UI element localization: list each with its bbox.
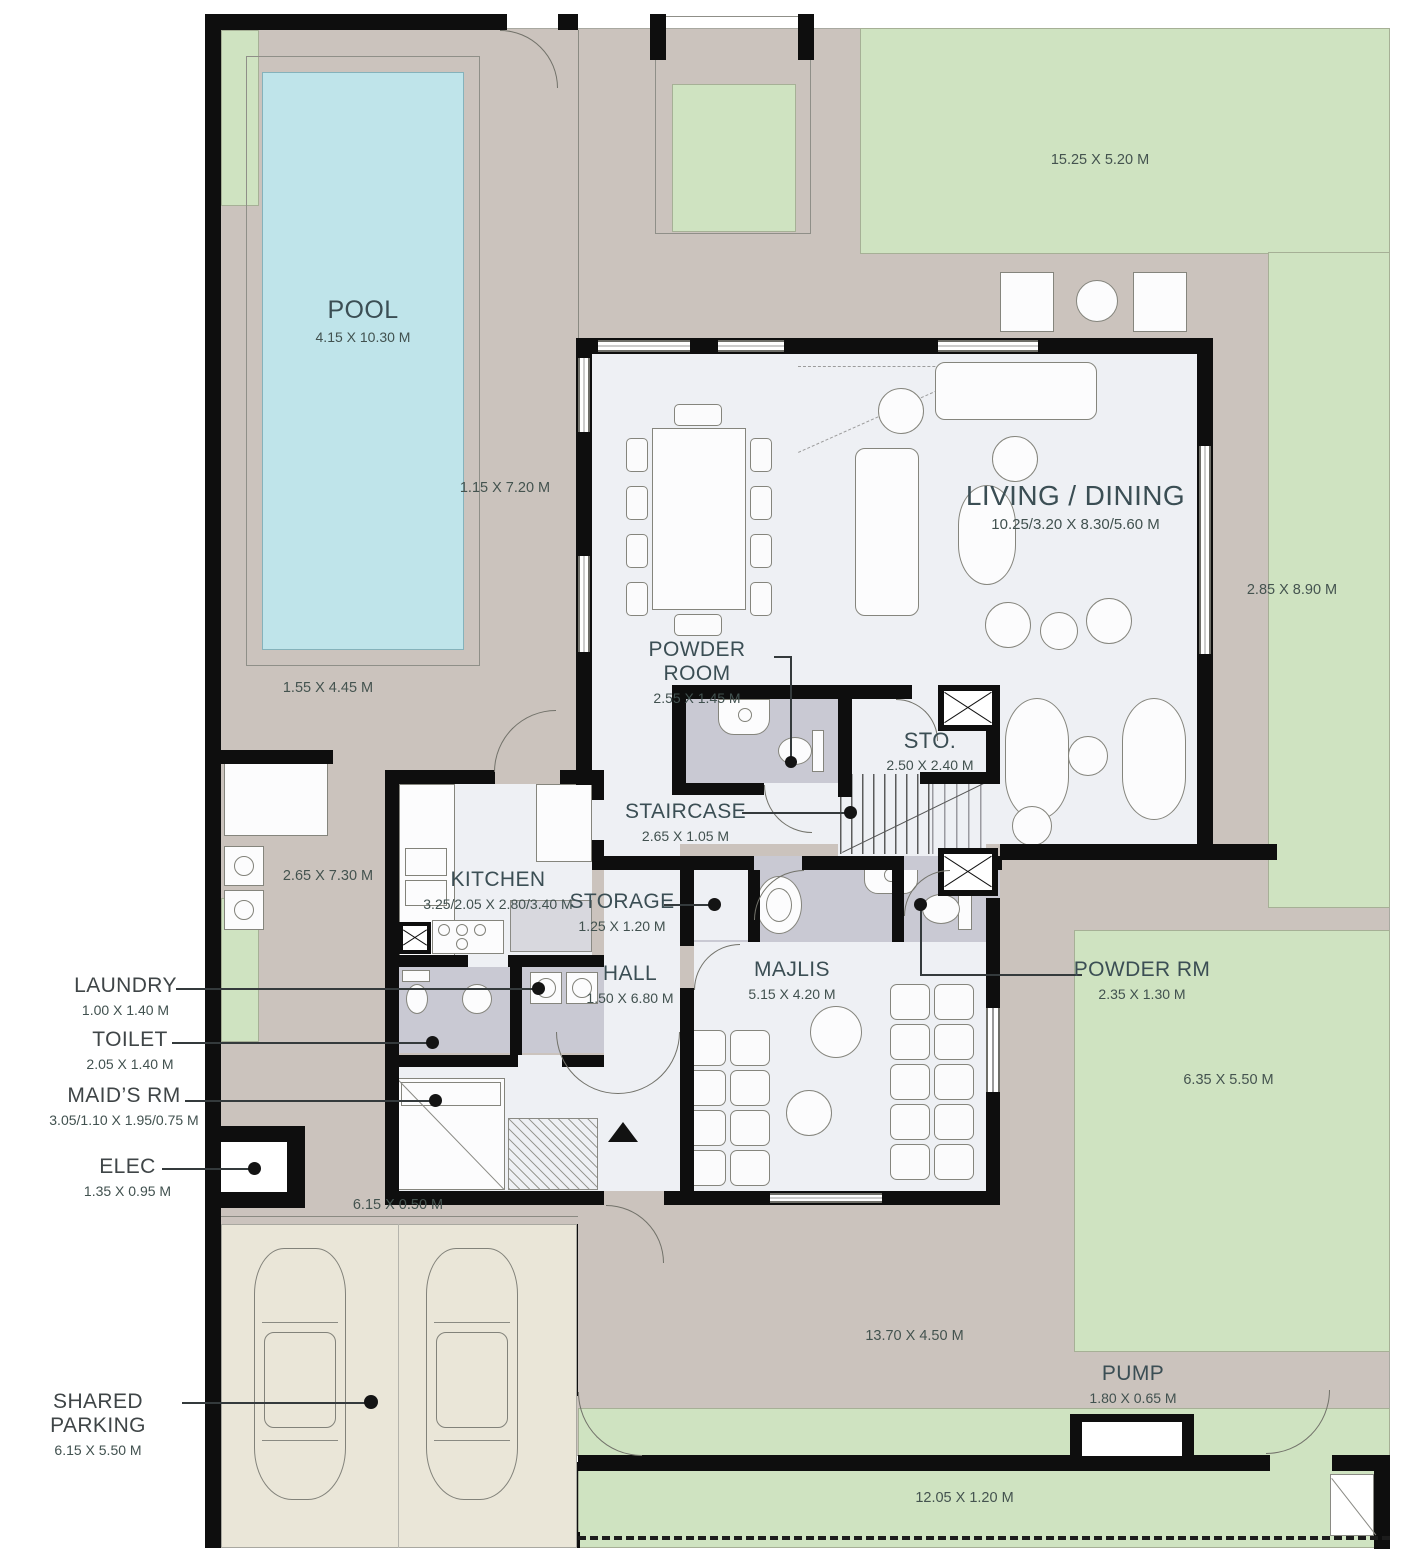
laundry-name: LAUNDRY bbox=[48, 974, 203, 998]
burner bbox=[474, 924, 486, 936]
dining-chair bbox=[626, 582, 648, 616]
door-opening bbox=[592, 800, 604, 840]
round-table bbox=[878, 388, 924, 434]
leader-dot bbox=[364, 1395, 378, 1409]
gatehouse-planter bbox=[672, 84, 796, 232]
dim-pool-side: 1.15 X 7.20 M bbox=[430, 480, 580, 496]
label-laundry: LAUNDRY 1.00 X 1.40 M bbox=[48, 974, 203, 1018]
majlis-name: MAJLIS bbox=[722, 958, 862, 982]
majlis-seat bbox=[890, 1104, 930, 1140]
wall-segment bbox=[892, 856, 904, 942]
window bbox=[986, 1008, 1000, 1092]
staircase-name: STAIRCASE bbox=[608, 800, 763, 824]
leader-dot bbox=[429, 1094, 442, 1107]
door-opening bbox=[468, 955, 508, 967]
dim-garden-right: 2.85 X 8.90 M bbox=[1212, 582, 1372, 598]
walkway-line bbox=[221, 1216, 578, 1217]
laundry-dims: 1.00 X 1.40 M bbox=[48, 1002, 203, 1018]
plot-boundary-dashed bbox=[578, 1536, 1390, 1540]
majlis-seat bbox=[934, 984, 974, 1020]
leader-line bbox=[172, 1042, 432, 1044]
bed-pillow bbox=[401, 1082, 501, 1106]
shared-parking-name: SHARED PARKING bbox=[4, 1390, 192, 1438]
wall-segment bbox=[852, 685, 912, 699]
dining-chair bbox=[750, 486, 772, 520]
majlis-seat bbox=[890, 1024, 930, 1060]
burner bbox=[456, 924, 468, 936]
window bbox=[1199, 446, 1211, 654]
lounge-chair bbox=[1122, 698, 1186, 820]
dim-garden-bottom: 12.05 X 1.20 M bbox=[882, 1490, 1047, 1506]
dining-chair bbox=[626, 486, 648, 520]
wall-segment bbox=[664, 1191, 680, 1205]
car-rear-line bbox=[262, 1440, 338, 1441]
wall-segment bbox=[680, 988, 694, 1205]
toilet-tank bbox=[402, 970, 430, 982]
wall-segment bbox=[205, 14, 221, 1548]
wall-segment bbox=[838, 685, 852, 797]
majlis-seat bbox=[890, 1144, 930, 1180]
storage-name: STORAGE bbox=[552, 890, 692, 914]
majlis-seat bbox=[730, 1070, 770, 1106]
maids-rm-name: MAID’S RM bbox=[30, 1084, 218, 1108]
pump-dims: 1.80 X 0.65 M bbox=[1068, 1390, 1198, 1406]
car-windshield-line bbox=[262, 1322, 338, 1323]
label-elec: ELEC 1.35 X 0.95 M bbox=[60, 1155, 195, 1199]
wall-segment bbox=[558, 14, 578, 30]
window bbox=[598, 340, 690, 352]
dining-chair bbox=[750, 534, 772, 568]
garden-top-right bbox=[860, 28, 1390, 254]
sofa bbox=[935, 362, 1097, 420]
pouf bbox=[1086, 598, 1132, 644]
powder-room-name: POWDER ROOM bbox=[612, 638, 782, 686]
burner bbox=[438, 924, 450, 936]
kitchen-name: KITCHEN bbox=[417, 868, 579, 892]
window bbox=[718, 340, 784, 352]
lounge-chair bbox=[1005, 698, 1069, 820]
powder-rm-dims: 2.35 X 1.30 M bbox=[1062, 986, 1222, 1002]
elec-dims: 1.35 X 0.95 M bbox=[60, 1183, 195, 1199]
toilet-tank bbox=[812, 730, 824, 772]
dim-garden-right-lower: 6.35 X 5.50 M bbox=[1146, 1072, 1311, 1088]
wall-segment bbox=[510, 955, 522, 1055]
label-shared-parking: SHARED PARKING 6.15 X 5.50 M bbox=[4, 1390, 192, 1458]
wall-segment bbox=[1000, 844, 1277, 860]
label-hall: HALL 1.50 X 6.80 M bbox=[580, 962, 680, 1006]
courtyard-edge-line bbox=[578, 30, 579, 338]
wall-segment bbox=[920, 772, 1000, 784]
leader-line bbox=[176, 988, 536, 990]
dining-table bbox=[652, 428, 746, 610]
leader-line bbox=[920, 974, 1082, 976]
label-powder-room: POWDER ROOM 2.55 X 1.45 M bbox=[612, 638, 782, 706]
wall-segment bbox=[798, 14, 814, 60]
majlis-seat bbox=[730, 1150, 770, 1186]
label-storage: STORAGE 1.25 X 1.20 M bbox=[552, 890, 692, 934]
label-living-dining: LIVING / DINING 10.25/3.20 X 8.30/5.60 M bbox=[958, 480, 1193, 533]
shared-parking-dims: 6.15 X 5.50 M bbox=[4, 1442, 192, 1458]
pump-box-inner bbox=[1082, 1422, 1182, 1456]
label-maids-rm: MAID’S RM 3.05/1.10 X 1.95/0.75 M bbox=[30, 1084, 218, 1128]
hall-dims: 1.50 X 6.80 M bbox=[580, 990, 680, 1006]
majlis-dims: 5.15 X 4.20 M bbox=[722, 986, 862, 1002]
storage-dims: 1.25 X 1.20 M bbox=[552, 918, 692, 934]
terrace-table bbox=[1076, 280, 1118, 322]
sto-name: STO. bbox=[880, 728, 980, 753]
window bbox=[578, 358, 590, 432]
dining-chair bbox=[674, 404, 722, 426]
car-windshield-line bbox=[434, 1322, 510, 1323]
majlis-seat bbox=[890, 984, 930, 1020]
living-dining-dims: 10.25/3.20 X 8.30/5.60 M bbox=[958, 516, 1193, 533]
sto-dims: 2.50 X 2.40 M bbox=[880, 757, 980, 773]
pool-dims: 4.15 X 10.30 M bbox=[283, 329, 443, 345]
label-pump: PUMP 1.80 X 0.65 M bbox=[1068, 1362, 1198, 1406]
car-roof bbox=[436, 1332, 508, 1428]
round-table bbox=[992, 436, 1038, 482]
wall-segment bbox=[385, 770, 495, 784]
pouf bbox=[786, 1090, 832, 1136]
leader-dot bbox=[785, 756, 797, 768]
window bbox=[578, 556, 590, 652]
dining-chair bbox=[674, 614, 722, 636]
pouf bbox=[1040, 612, 1078, 650]
majlis-seat bbox=[934, 1064, 974, 1100]
terrace-chair bbox=[1000, 272, 1054, 332]
pool bbox=[262, 72, 464, 650]
powder-room-dims: 2.55 X 1.45 M bbox=[612, 690, 782, 706]
shaft-box bbox=[399, 922, 431, 954]
wall-segment bbox=[560, 770, 592, 784]
car-roof bbox=[264, 1332, 336, 1428]
dim-walkway: 6.15 X 0.50 M bbox=[318, 1197, 478, 1213]
leader-line bbox=[790, 656, 792, 762]
wall-segment bbox=[650, 14, 666, 60]
parking-stall-line bbox=[398, 1224, 399, 1548]
dim-garden-top: 15.25 X 5.20 M bbox=[1010, 152, 1190, 168]
dining-chair bbox=[750, 438, 772, 472]
door-opening bbox=[754, 856, 802, 870]
leader-dot bbox=[532, 982, 545, 995]
wall-segment bbox=[1374, 1455, 1390, 1549]
label-staircase: STAIRCASE 2.65 X 1.05 M bbox=[608, 800, 763, 844]
majlis-seat bbox=[730, 1110, 770, 1146]
side-table bbox=[1012, 806, 1052, 846]
sink-drain bbox=[738, 708, 752, 722]
leader-dot bbox=[844, 806, 857, 819]
majlis-seat bbox=[890, 1064, 930, 1100]
floor-plan: POOL 4.15 X 10.30 M LIVING / DINING 10.2… bbox=[0, 0, 1403, 1563]
label-majlis: MAJLIS 5.15 X 4.20 M bbox=[722, 958, 862, 1002]
majlis-seat bbox=[730, 1030, 770, 1066]
leader-dot bbox=[708, 898, 721, 911]
window bbox=[938, 340, 1038, 352]
leader-line bbox=[182, 1402, 370, 1404]
powder-rm-name: POWDER RM bbox=[1062, 958, 1222, 982]
unit-detail bbox=[234, 900, 254, 920]
wall-segment bbox=[205, 14, 507, 30]
leader-dot bbox=[914, 898, 927, 911]
pool-name: POOL bbox=[283, 296, 443, 325]
shaft-box bbox=[938, 685, 998, 731]
window bbox=[770, 1193, 882, 1203]
majlis-seat bbox=[934, 1144, 974, 1180]
terrace-chair bbox=[1133, 272, 1187, 332]
dining-chair bbox=[626, 438, 648, 472]
sofa bbox=[855, 448, 919, 616]
majlis-seat bbox=[934, 1024, 974, 1060]
pouf bbox=[810, 1006, 862, 1058]
label-powder-rm: POWDER RM 2.35 X 1.30 M bbox=[1062, 958, 1222, 1002]
kitchen-counter bbox=[536, 784, 592, 862]
garden-right-strip bbox=[1268, 252, 1390, 908]
elec-name: ELEC bbox=[60, 1155, 195, 1179]
dim-terrace-left: 2.65 X 7.30 M bbox=[248, 868, 408, 884]
hall-name: HALL bbox=[580, 962, 680, 986]
leader-line bbox=[185, 1100, 435, 1102]
burner bbox=[456, 938, 468, 950]
dining-chair bbox=[750, 582, 772, 616]
entrance-marker bbox=[608, 1122, 638, 1142]
majlis-seat bbox=[934, 1104, 974, 1140]
leader-line bbox=[920, 906, 922, 976]
side-table bbox=[1068, 736, 1108, 776]
door-opening bbox=[518, 1055, 562, 1067]
label-sto: STO. 2.50 X 2.40 M bbox=[880, 728, 980, 773]
outdoor-platform bbox=[224, 762, 328, 836]
car-rear-line bbox=[434, 1440, 510, 1441]
pouf bbox=[985, 602, 1031, 648]
wardrobe bbox=[508, 1118, 598, 1190]
leader-dot bbox=[426, 1036, 439, 1049]
wall-segment bbox=[205, 750, 333, 764]
toilet-name: TOILET bbox=[55, 1028, 205, 1052]
pump-name: PUMP bbox=[1068, 1362, 1198, 1386]
maids-rm-dims: 3.05/1.10 X 1.95/0.75 M bbox=[30, 1112, 218, 1128]
staircase-dims: 2.65 X 1.05 M bbox=[608, 828, 763, 844]
living-dining-name: LIVING / DINING bbox=[958, 480, 1193, 512]
leader-dot bbox=[248, 1162, 261, 1175]
dim-pool-bottom: 1.55 X 4.45 M bbox=[248, 680, 408, 696]
wall-segment bbox=[672, 783, 764, 795]
toilet-dims: 2.05 X 1.40 M bbox=[55, 1056, 205, 1072]
dim-yard-bottom: 13.70 X 4.50 M bbox=[832, 1328, 997, 1344]
label-toilet: TOILET 2.05 X 1.40 M bbox=[55, 1028, 205, 1072]
dining-chair bbox=[626, 534, 648, 568]
label-pool: POOL 4.15 X 10.30 M bbox=[283, 296, 443, 345]
